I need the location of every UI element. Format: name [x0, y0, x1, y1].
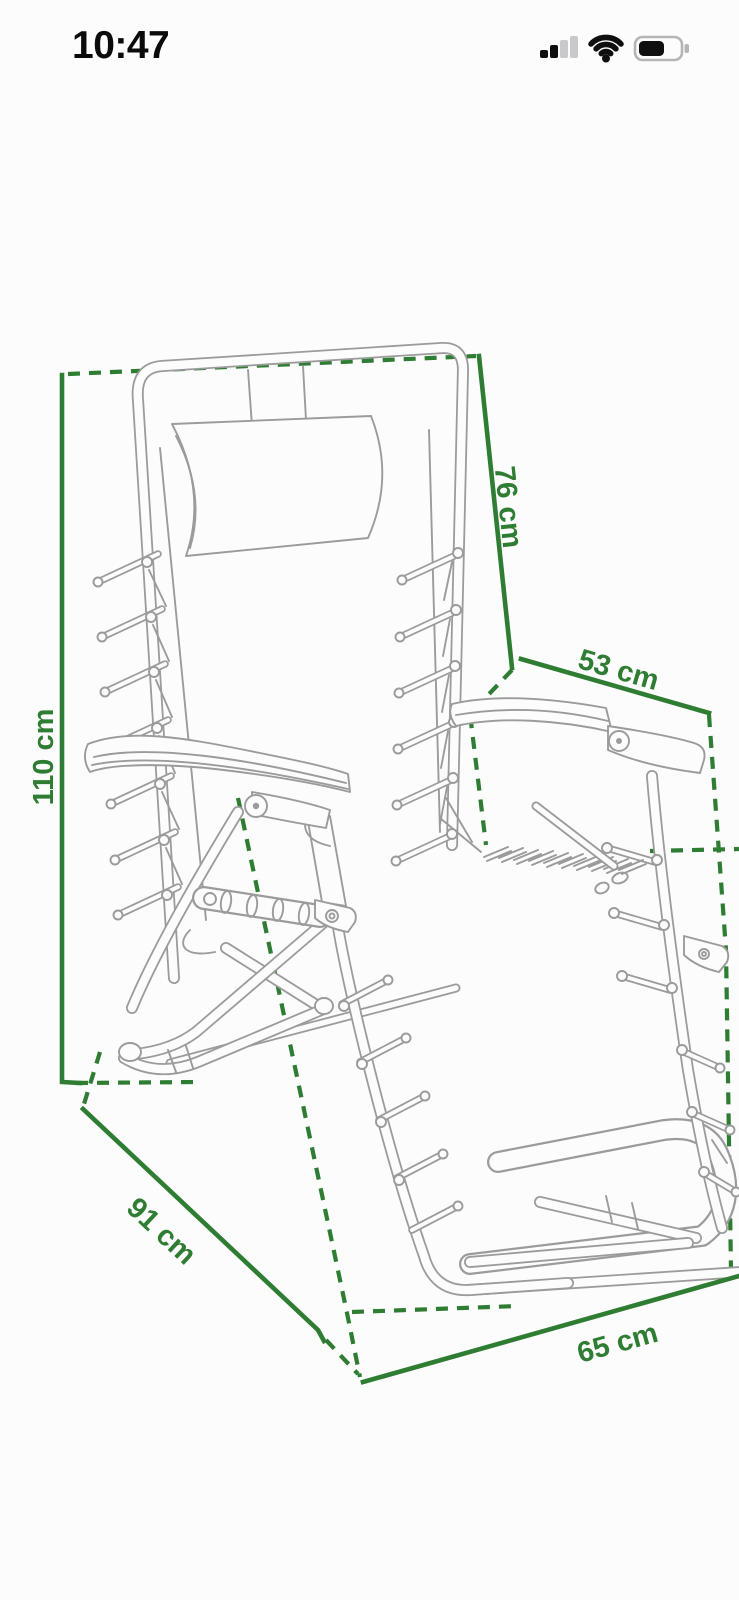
foot-cap — [315, 998, 333, 1014]
dimension-label-backrest: 76 cm — [488, 464, 528, 549]
dimension-base-depth: 91 cm — [83, 1109, 324, 1341]
headrest-pillow — [172, 416, 382, 556]
dimension-line-height — [62, 375, 80, 1083]
dimension-label-base-width: 65 cm — [574, 1317, 662, 1370]
headrest-strap — [248, 366, 306, 426]
foot-cap — [119, 1043, 141, 1061]
chair-line-drawing — [85, 348, 739, 1290]
seat-rails — [336, 776, 739, 1290]
left-armrest — [85, 736, 350, 828]
dimension-label-height: 110 cm — [28, 709, 60, 806]
dimension-line-base-depth — [83, 1109, 324, 1341]
dimension-base-width: 65 cm — [363, 1276, 739, 1382]
dimension-height: 110 cm — [28, 375, 80, 1083]
dimension-line-base-width — [363, 1276, 739, 1382]
right-armrest — [450, 698, 728, 972]
phone-screenshot: { "status_bar": { "time": "10:47", "icon… — [0, 0, 739, 1600]
product-dimension-diagram: 110 cm 76 cm 53 cm 91 cm 65 cm — [0, 0, 739, 1600]
dimension-label-base-depth: 91 cm — [120, 1192, 202, 1271]
folding-mechanism — [183, 806, 356, 953]
dimension-backrest: 76 cm — [479, 356, 528, 668]
